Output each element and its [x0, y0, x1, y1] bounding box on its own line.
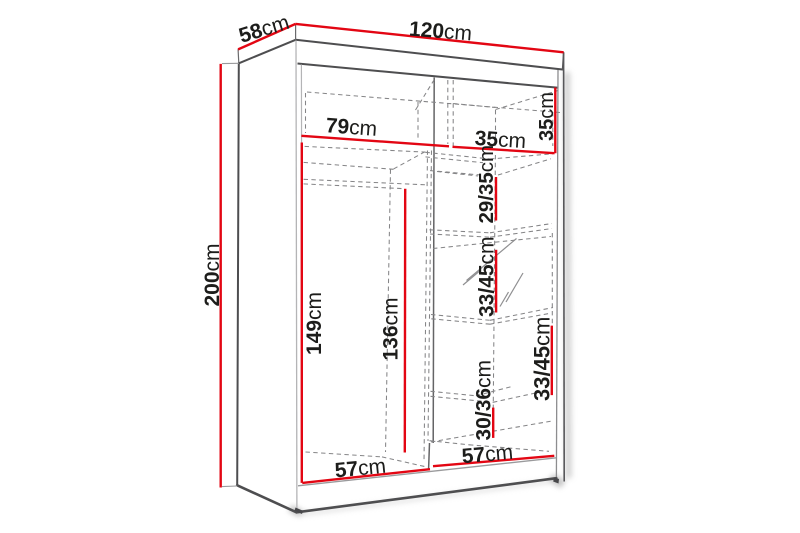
svg-text:30/36cm: 30/36cm — [473, 360, 496, 441]
svg-text:35cm: 35cm — [536, 92, 558, 141]
svg-text:29/35cm: 29/35cm — [475, 145, 498, 224]
svg-text:33/45cm: 33/45cm — [476, 236, 499, 317]
svg-text:57cm: 57cm — [461, 441, 514, 468]
svg-text:149cm: 149cm — [303, 292, 326, 355]
svg-text:136cm: 136cm — [380, 297, 403, 360]
svg-text:57cm: 57cm — [334, 455, 387, 483]
svg-text:33/45cm: 33/45cm — [529, 317, 554, 401]
svg-text:200cm: 200cm — [201, 243, 224, 306]
svg-text:79cm: 79cm — [325, 114, 378, 141]
